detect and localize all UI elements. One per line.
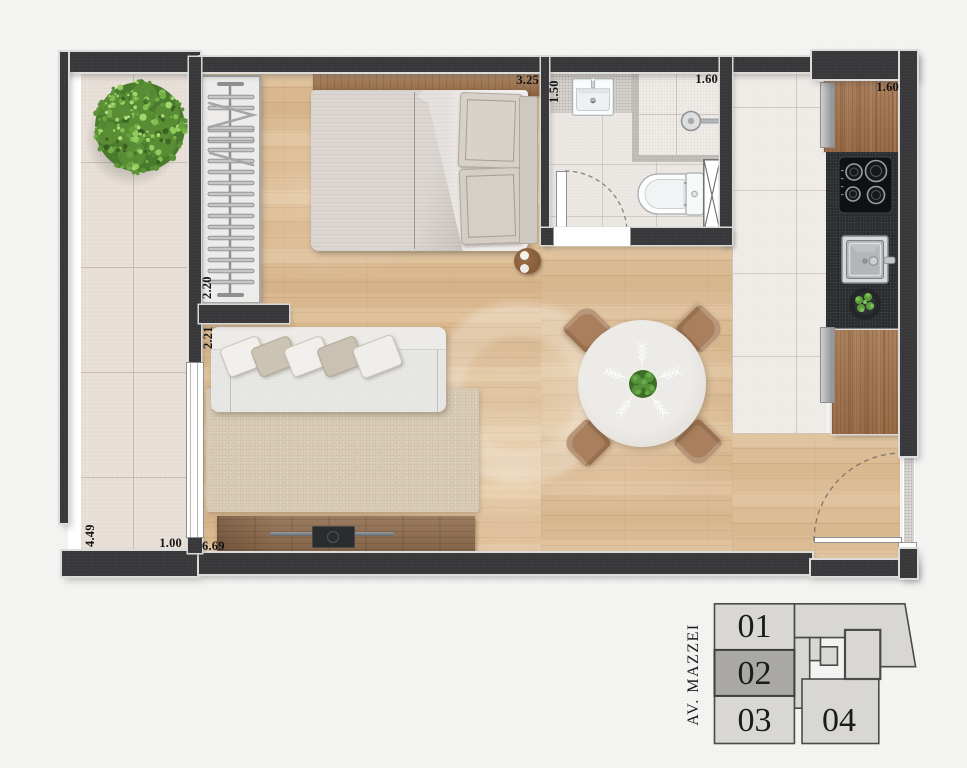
svg-text:02: 02	[738, 655, 772, 692]
svg-text:01: 01	[738, 608, 772, 645]
svg-text:AV. MAZZEI: AV. MAZZEI	[685, 623, 702, 725]
svg-text:04: 04	[822, 702, 856, 739]
svg-text:03: 03	[738, 702, 772, 739]
